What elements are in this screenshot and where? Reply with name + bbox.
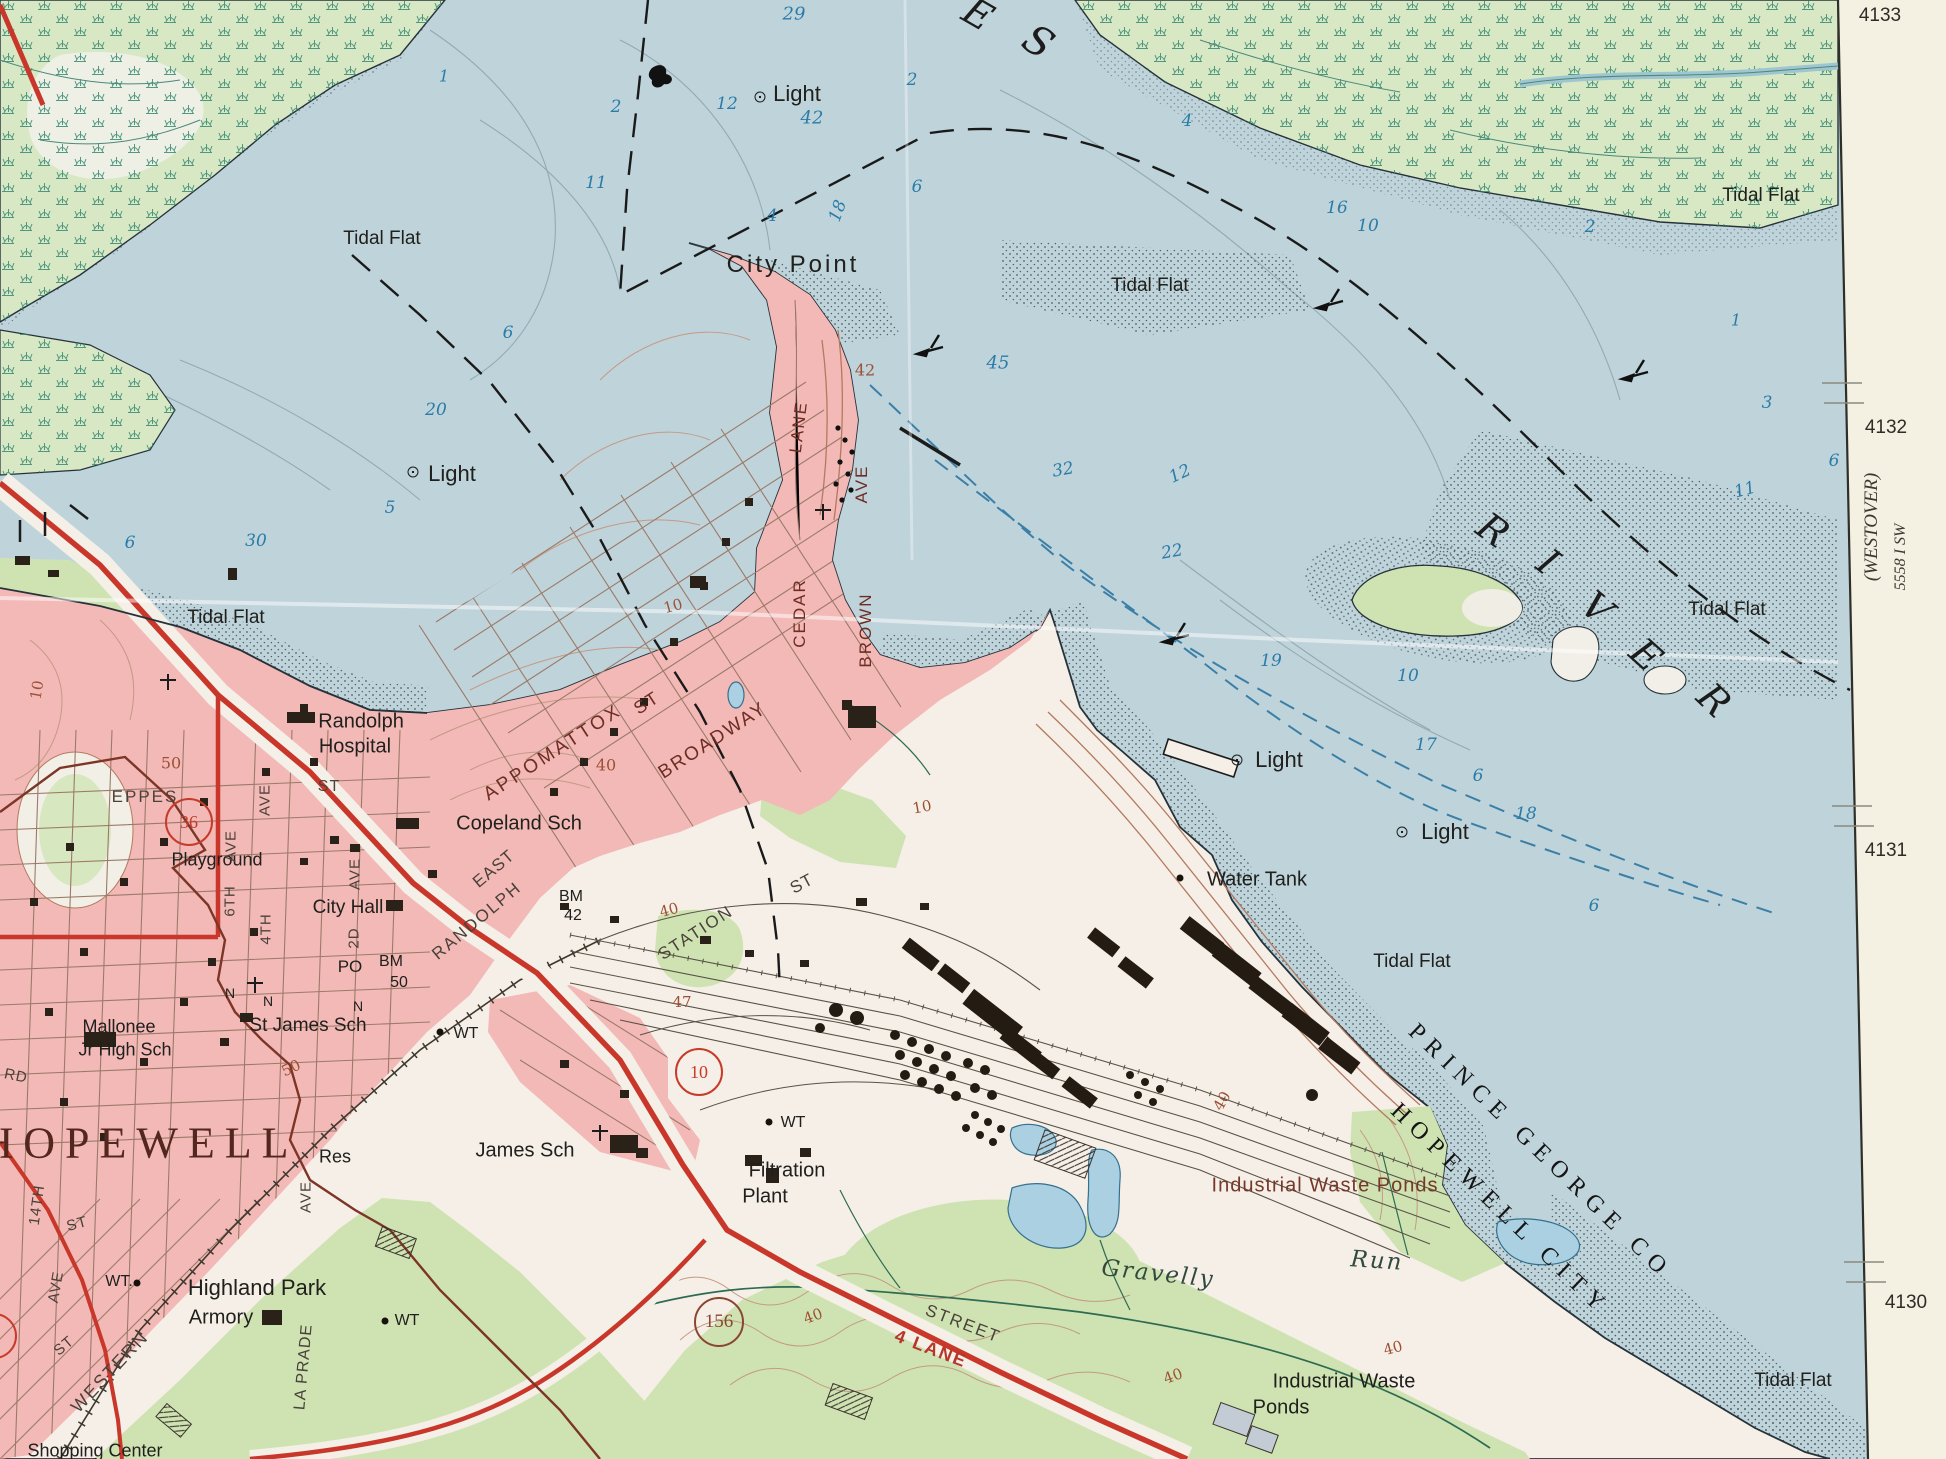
map-artwork xyxy=(0,0,1946,1459)
topo-map: City PointLightLightLightLightTidal Flat… xyxy=(0,0,1946,1459)
